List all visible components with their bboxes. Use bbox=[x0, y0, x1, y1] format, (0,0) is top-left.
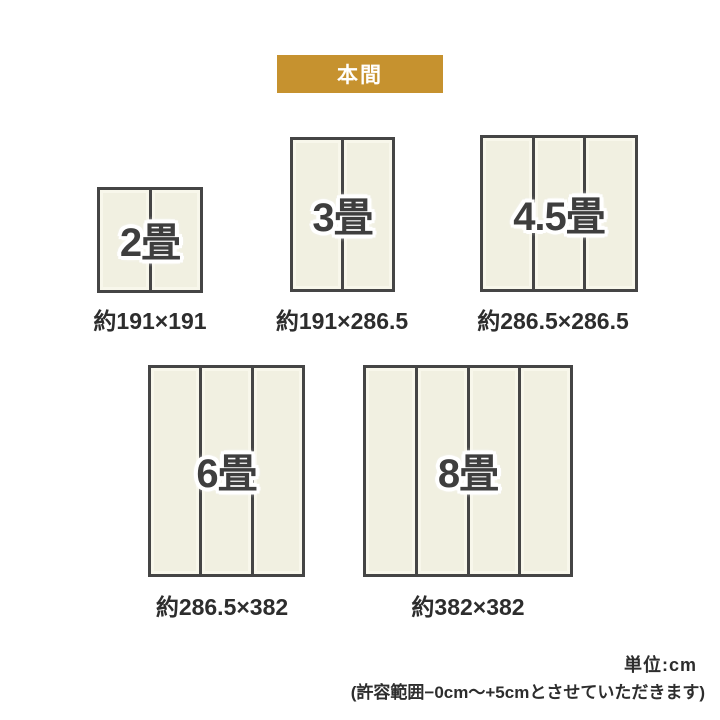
honma-badge-label: 本間 bbox=[337, 59, 383, 89]
honma-standard-badge: 本間 bbox=[277, 55, 443, 93]
size-diagram-8jo: 8畳 bbox=[363, 365, 573, 577]
size-label-6jo: 6畳 bbox=[151, 441, 302, 499]
size-diagram-4-5jo: 4.5畳 bbox=[480, 135, 638, 292]
size-label-4-5jo: 4.5畳 bbox=[483, 183, 635, 241]
tatami-size-chart: 本間 2畳 約191×191 3畳 約191×286.5 4.5畳 約286.5… bbox=[0, 0, 720, 720]
size-diagram-3jo: 3畳 bbox=[290, 137, 395, 292]
size-label-8jo: 8畳 bbox=[366, 441, 570, 499]
tolerance-note: (許容範囲−0cm〜+5cmとさせていただきます) bbox=[351, 678, 705, 703]
unit-label: 単位:cm bbox=[624, 651, 697, 677]
size-diagram-2jo: 2畳 bbox=[97, 187, 203, 293]
dimension-label-4-5jo: 約286.5×286.5 bbox=[393, 302, 713, 336]
dimension-label-8jo: 約382×382 bbox=[308, 588, 628, 622]
size-diagram-6jo: 6畳 bbox=[148, 365, 305, 577]
size-label-3jo: 3畳 bbox=[293, 184, 392, 242]
size-label-2jo: 2畳 bbox=[100, 210, 200, 268]
